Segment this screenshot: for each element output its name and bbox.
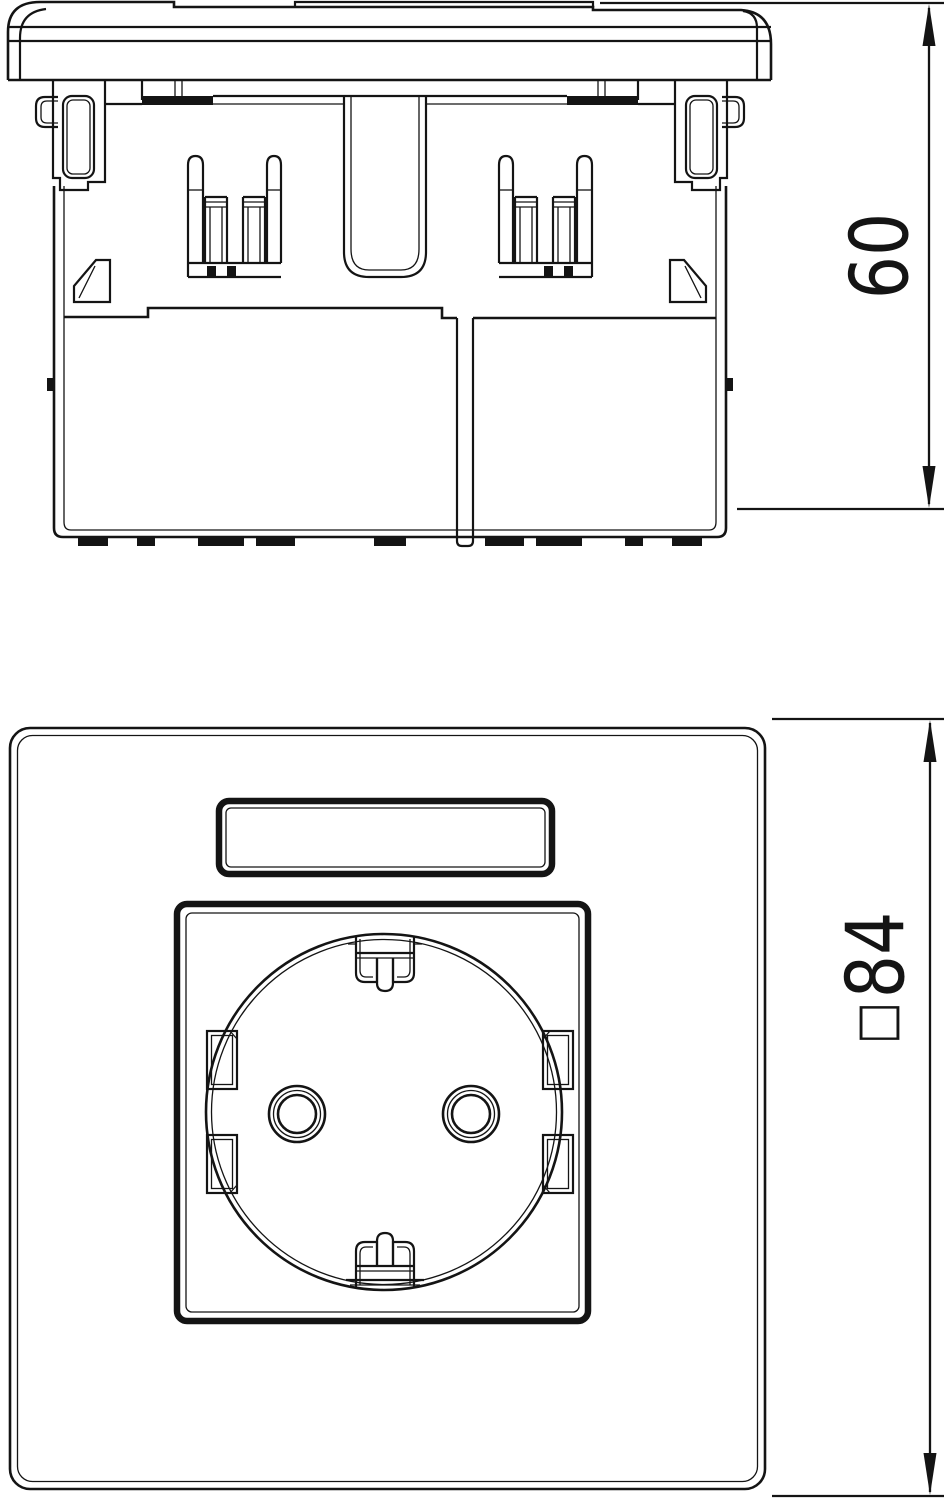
drawing-canvas: 60 (0, 0, 950, 1500)
side-contact-right (499, 156, 592, 277)
side-contact-left (188, 156, 281, 277)
side-tick-left (47, 378, 54, 391)
front-pin-hole-left (269, 1086, 325, 1142)
front-socket-frame (177, 904, 588, 1321)
side-right-latch (675, 80, 744, 190)
square-symbol: □ (846, 1002, 906, 1044)
technical-drawing-page: 60 (0, 0, 950, 1500)
arrowhead-down-icon (924, 1453, 937, 1495)
side-hook-left (74, 260, 110, 302)
front-cover-plate (10, 728, 765, 1489)
front-pin-hole-right (443, 1086, 499, 1142)
side-hook-right (670, 260, 706, 302)
front-dimension: 84 □ (772, 719, 944, 1496)
side-view (8, 2, 771, 546)
front-earth-clip-bottom (346, 1233, 424, 1287)
rail-bar-left (142, 96, 213, 105)
side-cover-plate (8, 2, 771, 80)
front-view (10, 728, 765, 1489)
side-tick-right (726, 378, 733, 391)
front-guide-pockets (207, 1031, 573, 1193)
front-label-window (219, 801, 552, 874)
side-carrier-rail (105, 80, 675, 105)
arrowhead-down-icon (923, 466, 936, 508)
side-housing (47, 186, 733, 546)
dimension-label-depth: 60 (833, 213, 927, 300)
front-earth-clip-top (348, 937, 422, 991)
rail-bar-right (567, 96, 638, 105)
side-center-channel (344, 96, 426, 277)
side-housing-feet (78, 538, 702, 546)
side-left-latch (36, 80, 105, 190)
dimension-label-front-size: 84 (829, 912, 923, 999)
front-socket-well (206, 934, 562, 1290)
arrowhead-up-icon (924, 720, 937, 762)
arrowhead-up-icon (923, 4, 936, 46)
